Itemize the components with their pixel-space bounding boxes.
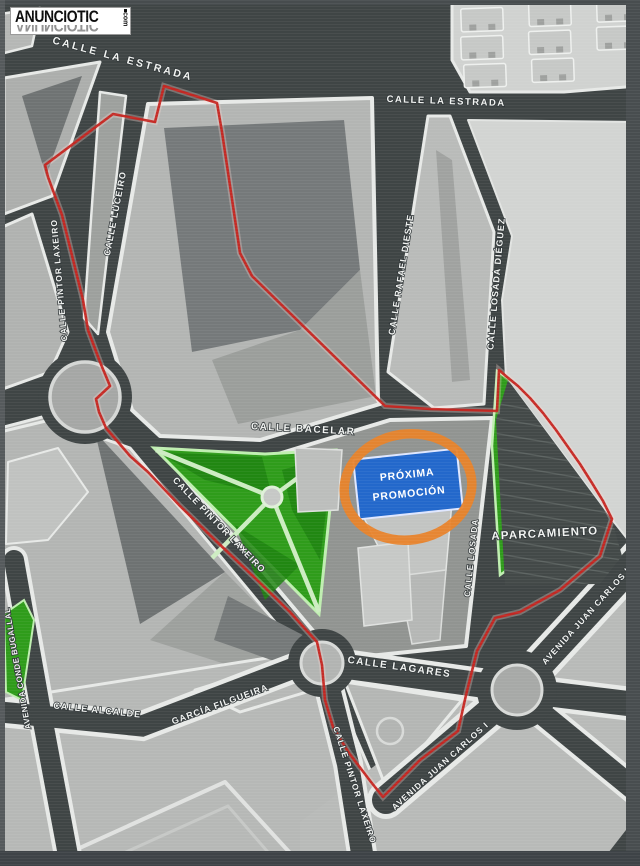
building-icon [461, 7, 504, 31]
promo-box [353, 449, 463, 520]
watermark-tld: com [122, 12, 129, 26]
building-icon [531, 58, 574, 82]
roundabout [50, 362, 120, 432]
watermark-reflection: ANUNCIOTIC [15, 25, 98, 34]
watermark-brand: ANUNCIOTIC [15, 8, 98, 25]
building-icon [529, 2, 572, 26]
roundabout [492, 665, 542, 715]
building-icon [529, 30, 572, 54]
city-map: PRÓXIMA PROMOCIÓN CALLE LA ESTRADA CALLE… [0, 0, 640, 866]
park-plaza-circle [262, 487, 282, 507]
building [358, 542, 412, 626]
watermark: ANUNCIOTIC ANUNCIOTIC com [10, 7, 131, 35]
building-icon [464, 63, 507, 87]
promo-building: PRÓXIMA PROMOCIÓN [353, 449, 463, 520]
traffic-island [377, 718, 403, 744]
building [295, 448, 342, 512]
building-icon [461, 35, 504, 59]
map-screenshot: PRÓXIMA PROMOCIÓN CALLE LA ESTRADA CALLE… [0, 0, 640, 866]
